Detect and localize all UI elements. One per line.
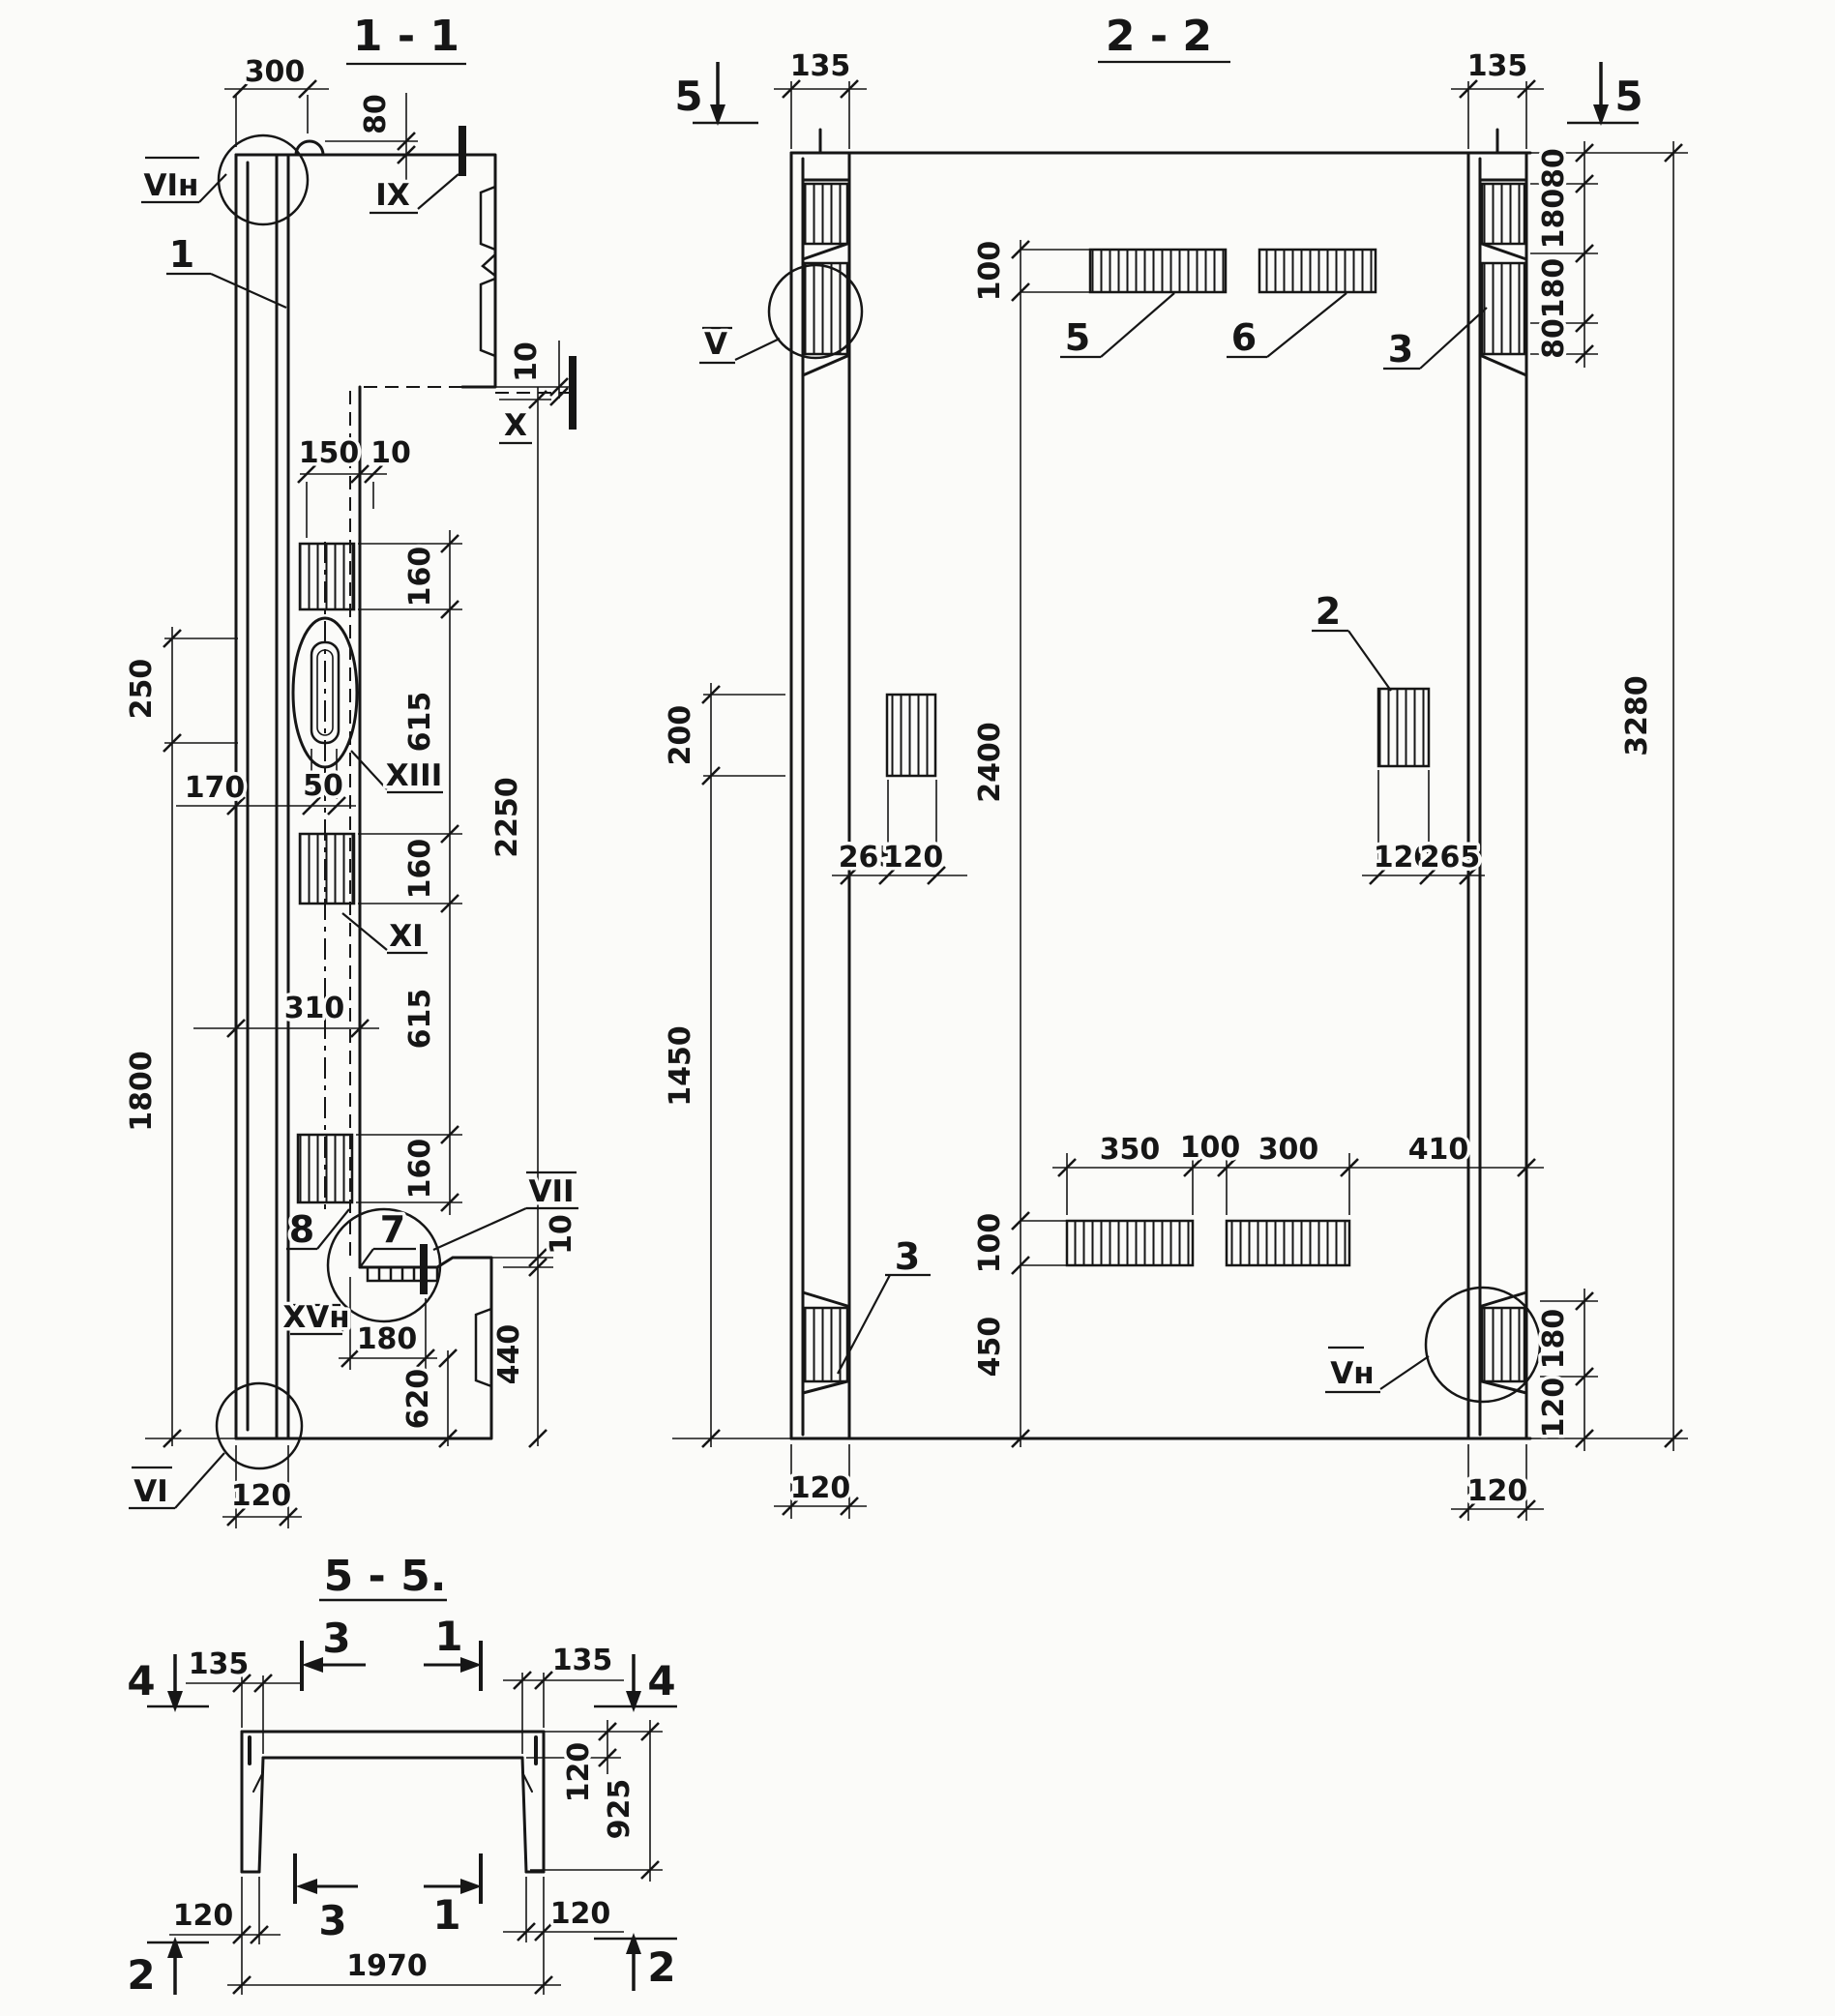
- dim-450: 450: [973, 1317, 1007, 1378]
- mark-VI: VI: [133, 1474, 168, 1509]
- view-5-5-outline: [242, 1732, 544, 1872]
- dim-150: 150: [299, 436, 360, 470]
- dim-80-top-b: 80: [1537, 318, 1571, 359]
- view-1-1-hidden-lines: [325, 387, 569, 1263]
- dim-100-low: 100: [973, 1213, 1007, 1274]
- dim-615-b: 615: [403, 989, 437, 1050]
- section-4-right: 4: [647, 1657, 675, 1705]
- mark-XIII: XIII: [386, 758, 443, 793]
- dim-120-55-botright: 120: [550, 1897, 611, 1931]
- view-1-1-section-bars: [424, 126, 573, 1294]
- dim-925: 925: [603, 1779, 636, 1840]
- section-4-left: 4: [127, 1657, 155, 1705]
- view-5-5-title: 5 - 5.: [324, 1552, 447, 1601]
- dim-50: 50: [303, 769, 343, 803]
- part-8: 8: [289, 1208, 314, 1251]
- dim-120-botchain: 120: [1537, 1378, 1571, 1438]
- section-3-top: 3: [322, 1615, 350, 1662]
- mark-IX: IX: [375, 178, 410, 213]
- dim-160-a: 160: [403, 547, 437, 608]
- view-1-1-outline: [236, 141, 495, 1438]
- dim-300: 300: [245, 55, 306, 89]
- part-5: 5: [1065, 316, 1090, 359]
- drawing-canvas: 1 - 1 300 80 VIн 1 IX X 10 150 10 160 61…: [0, 0, 1835, 2016]
- dim-620: 620: [401, 1369, 435, 1430]
- view-1-1-title: 1 - 1: [353, 12, 459, 61]
- dim-440: 440: [492, 1324, 526, 1385]
- section-1-bottom: 1: [432, 1891, 460, 1939]
- dim-180-11: 180: [357, 1322, 418, 1356]
- dim-120-55-botleft: 120: [173, 1899, 234, 1933]
- dim-350: 350: [1100, 1133, 1161, 1167]
- dim-410: 410: [1408, 1133, 1469, 1167]
- dim-135-right: 135: [1467, 49, 1528, 83]
- section-2-right: 2: [647, 1943, 675, 1991]
- dim-120-botleft: 120: [790, 1471, 851, 1505]
- view-2-2: 2 - 2 135 135 5 5 80 180 180 80 100 5 6 …: [664, 12, 1688, 1521]
- dim-310: 310: [284, 992, 345, 1025]
- view-2-2-title: 2 - 2: [1106, 12, 1212, 61]
- dim-170: 170: [185, 771, 246, 805]
- dim-265-right: 265: [1420, 841, 1481, 875]
- drawing-sheet: 1 - 1 300 80 VIн 1 IX X 10 150 10 160 61…: [0, 0, 1835, 2016]
- mark-XI: XI: [389, 919, 423, 954]
- dim-160-b: 160: [403, 839, 437, 900]
- dim-100-top: 100: [973, 241, 1007, 302]
- dim-100-row: 100: [1180, 1131, 1241, 1165]
- part-6: 6: [1231, 316, 1257, 359]
- part-2: 2: [1316, 590, 1341, 633]
- dim-200: 200: [664, 705, 697, 766]
- dim-120-slab: 120: [562, 1742, 596, 1803]
- dim-250: 250: [125, 659, 159, 720]
- section-3-bottom: 3: [318, 1897, 346, 1944]
- dim-160-c: 160: [403, 1139, 437, 1200]
- section-2-left: 2: [127, 1951, 155, 1999]
- view-5-5: 5 - 5. 4 4 2 2 3 1 3 1 135 135 120 925 1…: [127, 1552, 677, 1999]
- mark-X: X: [504, 408, 527, 443]
- dim-10-vii: 10: [545, 1214, 578, 1255]
- part-1: 1: [169, 233, 194, 276]
- mark-VII: VII: [528, 1174, 574, 1209]
- mark-Vn: Vн: [1330, 1356, 1374, 1391]
- dim-120-11: 120: [231, 1479, 292, 1513]
- view-2-2-rebar-blocks: [805, 184, 1524, 1381]
- dim-1450: 1450: [664, 1025, 697, 1107]
- dim-1970: 1970: [346, 1949, 428, 1983]
- mark-XVn: XVн: [282, 1300, 349, 1335]
- dim-120-botright: 120: [1467, 1474, 1528, 1508]
- dim-10-top: 10: [510, 341, 544, 382]
- dim-135-left: 135: [790, 49, 851, 83]
- dim-615-a: 615: [403, 692, 437, 753]
- mark-V: V: [704, 327, 727, 362]
- dim-135-55-left: 135: [189, 1647, 250, 1681]
- dim-180-top-a: 180: [1537, 189, 1571, 250]
- view-1-1: 1 - 1 300 80 VIн 1 IX X 10 150 10 160 61…: [125, 12, 578, 1528]
- dim-80-top-a: 80: [1537, 148, 1571, 189]
- dim-3280: 3280: [1620, 675, 1654, 756]
- section-1-top: 1: [434, 1613, 462, 1660]
- view-5-5-section-arrows: [147, 1641, 677, 1995]
- section-5-right: 5: [1614, 73, 1643, 120]
- dim-80: 80: [359, 94, 393, 134]
- dim-135-55-right: 135: [552, 1644, 613, 1677]
- dim-2250: 2250: [490, 777, 524, 858]
- view-5-5-dim-ticks: [233, 1672, 659, 1994]
- part-3-top-right: 3: [1388, 328, 1413, 371]
- dim-2400: 2400: [973, 722, 1007, 803]
- dim-180-bot: 180: [1537, 1309, 1571, 1370]
- mark-VIn: VIн: [144, 168, 199, 203]
- dim-120-midleft: 120: [883, 841, 944, 875]
- part-7: 7: [380, 1208, 405, 1251]
- section-5-left: 5: [674, 73, 702, 120]
- dim-1800: 1800: [125, 1051, 159, 1132]
- part-3-bottom-left: 3: [895, 1235, 920, 1278]
- dim-10-gap: 10: [370, 436, 411, 470]
- detail-circle-VIn: [219, 135, 308, 224]
- dim-180-top-b: 180: [1537, 258, 1571, 319]
- dim-300-row: 300: [1258, 1133, 1319, 1167]
